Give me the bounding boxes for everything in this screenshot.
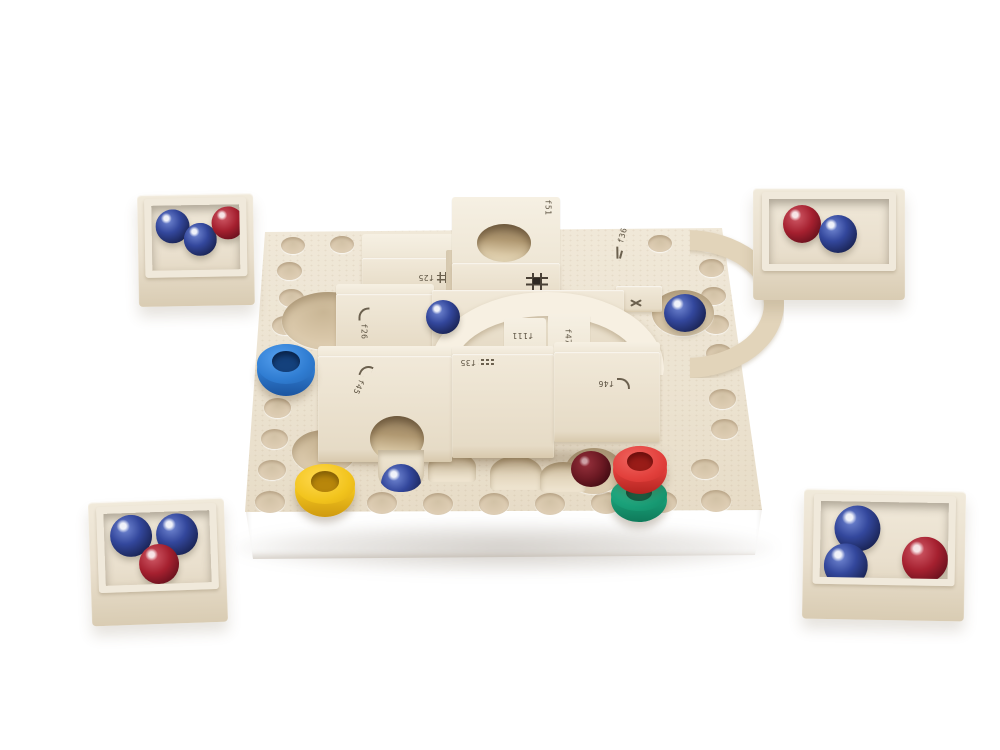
board-dimple [258, 460, 286, 480]
marble-darkred [571, 451, 611, 487]
block-f25-top [362, 234, 458, 260]
board-dimple [423, 493, 453, 515]
block-label: f45 [351, 378, 366, 396]
crossing-curves-icon [630, 298, 642, 308]
block-label: f25 [418, 273, 434, 282]
board-dimple [330, 236, 354, 253]
ring-blue [257, 344, 315, 396]
block-f26: f26 [336, 294, 434, 354]
block-f46: f46 [554, 352, 660, 442]
block-label: f35 [460, 358, 476, 367]
board-dimple [648, 235, 672, 252]
marble-blue [426, 300, 460, 334]
tray-bottom-left [88, 498, 228, 627]
straight-track-icon [479, 359, 494, 366]
marble-blue [381, 464, 421, 492]
tray-marble-red [211, 207, 245, 241]
ring-yellow [295, 464, 355, 517]
tray-bottom-right [802, 489, 966, 622]
block-f35: f35 [452, 354, 554, 458]
block-f51-top: f51 [452, 197, 560, 265]
block-f45: f45 [318, 356, 452, 462]
board-dimple [261, 429, 288, 449]
curve-icon [358, 308, 369, 321]
tray-top-right [753, 188, 905, 300]
board-dimple [367, 492, 397, 514]
board-dimple [711, 419, 738, 439]
curve-icon [617, 378, 630, 389]
marble-cup [378, 450, 424, 492]
tray-marble-red [783, 205, 821, 243]
board-dimple [281, 237, 305, 254]
tray-opening [812, 494, 956, 586]
board-dimple [255, 491, 285, 513]
tray-marble-red [139, 543, 180, 584]
board-dimple [701, 490, 731, 512]
curve-icon [358, 363, 373, 379]
grid-cross-icon [526, 273, 548, 290]
tray-marble-blue [823, 543, 868, 586]
board-dimple [709, 389, 736, 409]
tray-opening [96, 503, 219, 593]
marble-blue [664, 294, 706, 332]
board-dimple [535, 493, 565, 515]
product-photo-marble-run-game: f25 f51 f36 f26 f111 [0, 0, 1000, 750]
tray-opening [762, 192, 896, 271]
tray-marble-blue [819, 215, 857, 253]
block-label: f26 [359, 324, 368, 340]
block-label: f46 [598, 379, 614, 388]
board-dimple [691, 459, 719, 479]
board-dimple [277, 262, 302, 280]
tray-opening [144, 198, 247, 279]
block-label: f111 [512, 331, 533, 340]
tray-top-left [137, 193, 255, 307]
ring-red [613, 446, 667, 494]
board-dimple [264, 398, 291, 418]
tray-marble-red [901, 536, 948, 583]
block-label: f51 [544, 200, 553, 216]
board-dimple [479, 493, 509, 515]
marble-hole [477, 224, 531, 262]
